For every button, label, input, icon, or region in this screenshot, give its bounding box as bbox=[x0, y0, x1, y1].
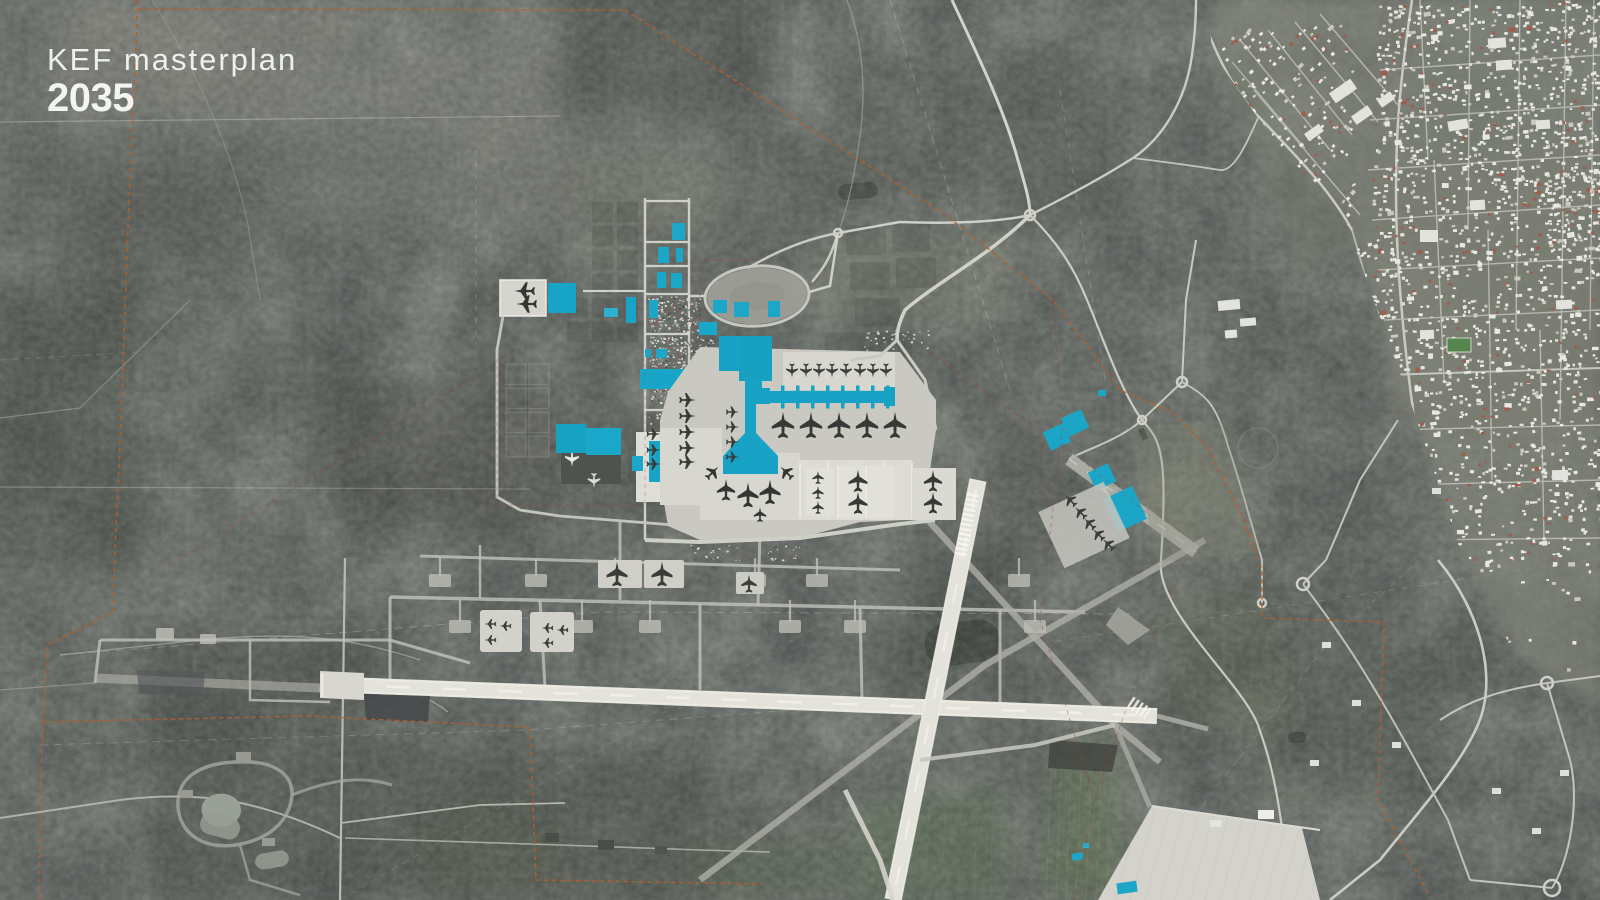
svg-text:KEF masterplan: KEF masterplan bbox=[47, 42, 297, 77]
svg-text:2035: 2035 bbox=[47, 76, 134, 120]
